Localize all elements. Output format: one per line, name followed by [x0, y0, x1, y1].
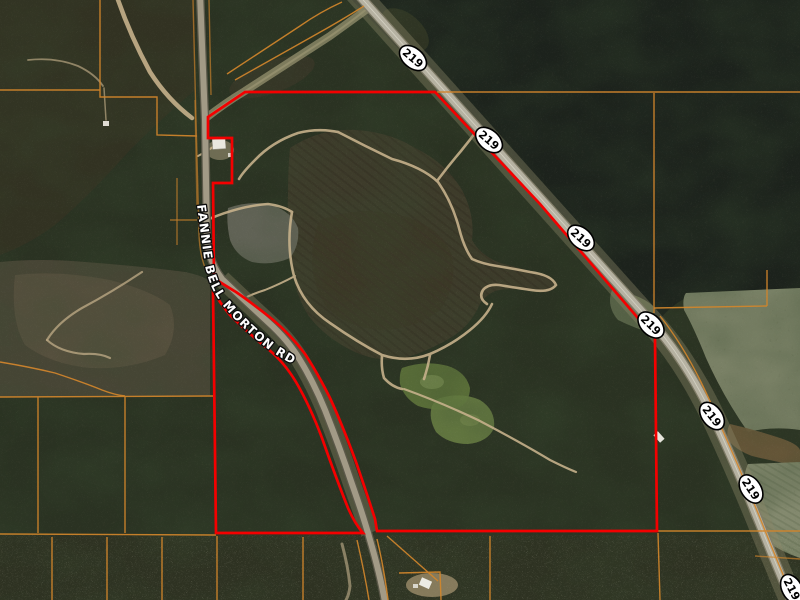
map-canvas: FANNIE BELL MORTON RD 219219219219219219… — [0, 0, 800, 600]
house — [103, 121, 109, 126]
shed — [413, 584, 418, 588]
aerial-parcel-map[interactable]: FANNIE BELL MORTON RD 219219219219219219… — [0, 0, 800, 600]
house — [212, 139, 226, 150]
deciduous-speckle — [0, 535, 800, 600]
canopy-speckle — [0, 0, 800, 600]
parcel-line — [0, 534, 216, 535]
